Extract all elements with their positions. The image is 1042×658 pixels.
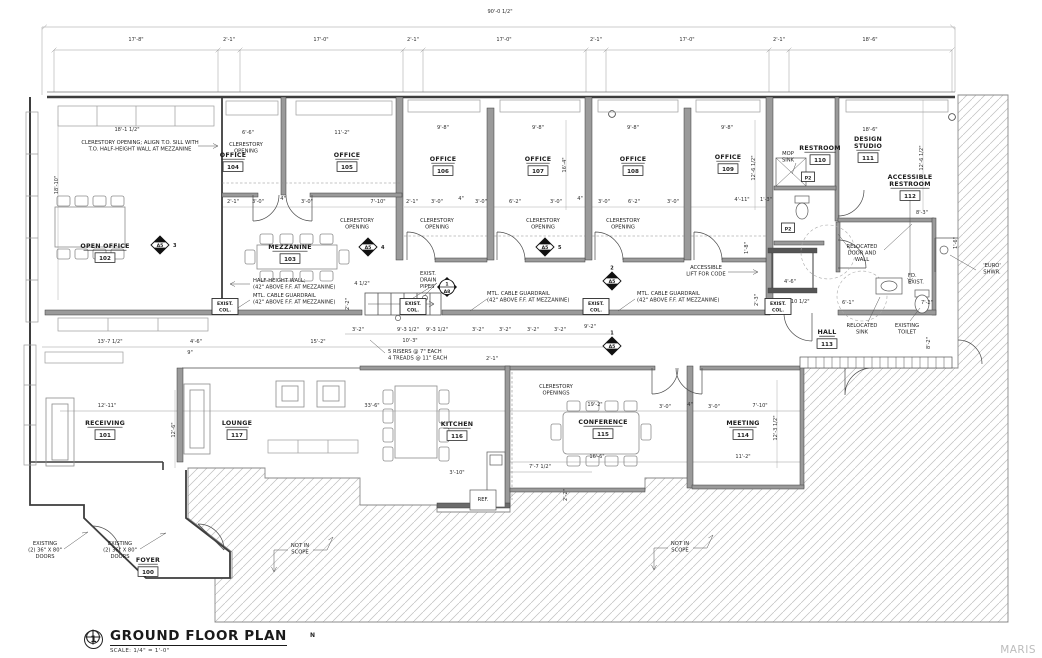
detail-circle-label: A8 xyxy=(444,289,451,295)
receiving-sofa xyxy=(46,398,74,466)
chair xyxy=(551,424,561,440)
annotation-note: 'EURO' xyxy=(983,263,1001,269)
annotation-note: LIFT FOR CODE xyxy=(686,272,725,278)
detail-marker-top xyxy=(606,337,619,343)
dimension-label: 9'-3 1/2" xyxy=(426,327,448,333)
dimension-label: 2'-1" xyxy=(773,37,785,43)
annotation-note: CLERESTORY OPENING; ALIGN T.O. SILL WITH xyxy=(81,140,198,146)
dimension-label: 6'-6" xyxy=(242,130,254,136)
detail-marker-top xyxy=(362,238,375,244)
annotation-note: CLERESTORY xyxy=(229,142,263,148)
annotation-note: SINK xyxy=(856,330,869,336)
annotation-note: CLERESTORY xyxy=(606,218,640,224)
plumbing-tag: P2 xyxy=(785,226,792,232)
dimension-label: 18'-6" xyxy=(862,37,877,43)
dimension-label: 12'-6 1/2" xyxy=(751,155,757,180)
detail-marker-number: 2 xyxy=(610,266,614,272)
room-number: 105 xyxy=(341,165,353,171)
room-label: OPEN OFFICE xyxy=(80,243,129,250)
chair xyxy=(383,447,393,461)
detail-marker-number: 1 xyxy=(610,331,614,337)
room-label: OFFICE xyxy=(430,156,456,163)
annotation-note: CLERESTORY xyxy=(539,384,573,390)
chair xyxy=(567,401,580,411)
dimension-label: 1'-6" xyxy=(953,237,959,249)
floor-plan-sheet: FOYER100RECEIVING101OPEN OFFICE102MEZZAN… xyxy=(0,0,1042,658)
chair xyxy=(339,250,349,264)
dimension-label: 2'-1" xyxy=(486,356,498,362)
drawing-title: GROUND FLOOR PLAN xyxy=(110,628,287,646)
title-block: 1 GROUND FLOOR PLAN SCALE: 1/4" = 1'-0" … xyxy=(84,628,315,654)
dimension-label: 9'-3 1/2" xyxy=(397,327,419,333)
annotation-note: OPENINGS xyxy=(542,391,569,397)
room-number: 104 xyxy=(227,165,239,171)
room-label: RESTROOM xyxy=(889,181,930,188)
open-office-table xyxy=(55,207,125,247)
chair xyxy=(320,271,333,281)
dimension-label: 17'-0" xyxy=(679,37,694,43)
room-label: DESIGN xyxy=(854,136,882,143)
dimension-label: 12'-6 1/2" xyxy=(919,145,925,170)
dimension-label: 3'-2" xyxy=(352,327,364,333)
chair xyxy=(624,456,637,466)
column-tag: EXIST. xyxy=(405,301,421,307)
room-label: OFFICE xyxy=(715,154,741,161)
annotation-note: CLERESTORY xyxy=(340,218,374,224)
dimension-label: 6'-2" xyxy=(628,199,640,205)
toilet-restroom-110 xyxy=(795,196,809,219)
dimension-label: 6'-2" xyxy=(509,199,521,205)
dimension-label: 12'-3 1/2" xyxy=(773,415,779,440)
north-arrow-icon xyxy=(84,628,102,646)
dimension-label: 16'-6" xyxy=(589,454,604,460)
detail-marker-number: 3 xyxy=(173,243,177,249)
drawing-scale: SCALE: 1/4" = 1'-0" xyxy=(110,648,287,654)
dimension-label: 7'-7 1/2" xyxy=(529,464,551,470)
chair xyxy=(439,390,449,404)
annotation-note: (2) 36" X 80" xyxy=(28,548,62,554)
dimension-label: 4'-6" xyxy=(784,279,796,285)
detail-marker-top xyxy=(539,238,552,244)
chair xyxy=(641,424,651,440)
dimension-label: 3'-0" xyxy=(598,199,610,205)
dimension-label: 4'-6" xyxy=(190,339,202,345)
room-number: 111 xyxy=(862,156,874,162)
room-label: MEETING xyxy=(726,420,759,427)
room-number: 117 xyxy=(231,433,243,439)
dimension-label: 19'-2" xyxy=(587,402,602,408)
annotation-note: RELOCATED xyxy=(847,244,878,250)
dimension-label: 3'-0" xyxy=(550,199,562,205)
dimension-label: 3'-0" xyxy=(708,404,720,410)
dimension-label: 17'-0" xyxy=(313,37,328,43)
room-number: 109 xyxy=(722,167,734,173)
room-label: CONFERENCE xyxy=(578,419,627,426)
dimension-label: 2'-1" xyxy=(227,199,239,205)
floor-plan-drawing: FOYER100RECEIVING101OPEN OFFICE102MEZZAN… xyxy=(0,0,1042,658)
dimension-label: 7'-10" xyxy=(752,403,767,409)
detail-circle-number: 1 xyxy=(445,281,448,287)
annotation-note: RELOCATED xyxy=(847,323,878,329)
watermark: MARIS xyxy=(1000,644,1036,656)
chair xyxy=(439,447,449,461)
dimension-label: 8'-2" xyxy=(926,337,932,349)
chair xyxy=(57,196,70,206)
column-tag: EXIST. xyxy=(588,301,604,307)
column-tag: COL. xyxy=(219,307,231,313)
dimension-label: 3'-0" xyxy=(659,404,671,410)
room-label: HALL xyxy=(818,329,837,336)
room-label: RESTROOM xyxy=(799,145,840,152)
annotation-note: PIPES xyxy=(420,284,434,290)
dimension-label: 7'-10" xyxy=(370,199,385,205)
column-tag: COL. xyxy=(590,307,602,313)
annotation-note: (2) 36" X 80" xyxy=(103,548,137,554)
dimension-label: 9'-2" xyxy=(584,324,596,330)
annotation-note: SINK xyxy=(782,158,795,164)
room-number: 107 xyxy=(532,169,544,175)
annotation-note: OPENING xyxy=(611,225,635,231)
room-number: 106 xyxy=(437,169,449,175)
chair xyxy=(300,234,313,244)
chair xyxy=(57,249,70,259)
annotation-note: MOP xyxy=(782,151,794,157)
annotation-note: FD. xyxy=(908,273,917,279)
dimension-label: 11'-2" xyxy=(735,454,750,460)
lounge-armchair xyxy=(317,381,345,407)
annotation-note: SCOPE xyxy=(291,550,308,556)
chair xyxy=(567,456,580,466)
dimension-label: 4" xyxy=(458,196,464,202)
north-label: N xyxy=(310,632,315,639)
chair xyxy=(605,456,618,466)
room-label: ACCESSIBLE xyxy=(888,174,933,181)
dimension-label: 16'-4" xyxy=(562,157,568,172)
room-number: 114 xyxy=(737,433,749,439)
clearance-circles xyxy=(801,225,887,321)
annotation-note: EXIST. xyxy=(420,271,436,277)
dimension-label: 2'-2" xyxy=(345,298,351,310)
chair xyxy=(383,428,393,442)
annotation-note: MTL. CABLE GUARDRAIL xyxy=(637,291,700,297)
dimension-label: 17'-8" xyxy=(128,37,143,43)
dimension-label: 4" xyxy=(280,196,286,202)
dimension-label: 9'-8" xyxy=(721,125,733,131)
dimension-label: 18'-6" xyxy=(862,127,877,133)
column-tag: COL. xyxy=(407,307,419,313)
room-number: 113 xyxy=(821,342,833,348)
room-label: STUDIO xyxy=(854,143,883,150)
chair xyxy=(320,234,333,244)
dimension-label: 9'-8" xyxy=(532,125,544,131)
dimension-label: 90'-0 1/2" xyxy=(487,9,512,15)
dimension-label: 2'-2" xyxy=(563,489,569,501)
walkway-strip xyxy=(800,357,952,368)
room-number: 110 xyxy=(814,158,826,164)
dimension-label: 6'-1" xyxy=(842,300,854,306)
dimension-label: 12'-11" xyxy=(98,403,117,409)
lounge-armchair xyxy=(276,381,304,407)
chair xyxy=(383,390,393,404)
dimension-label: 3'-2" xyxy=(472,327,484,333)
annotation-note: EXISTING xyxy=(33,541,57,547)
annotation-note: DOORS xyxy=(110,554,129,560)
room-label: OFFICE xyxy=(525,156,551,163)
dimension-label: 11'-2" xyxy=(334,130,349,136)
dimension-label: 17'-0" xyxy=(496,37,511,43)
dimension-label: 1'-8" xyxy=(744,242,750,254)
dimension-label: 2'-1" xyxy=(407,37,419,43)
dimension-label: 1'-3" xyxy=(760,197,772,203)
chair xyxy=(280,234,293,244)
annotation-note: OPENING xyxy=(425,225,449,231)
annotation-note: DOOR AND xyxy=(848,251,877,257)
room-number: 100 xyxy=(142,570,154,576)
annotation-note: 5 RISERS @ 7" EACH xyxy=(388,349,442,355)
kitchen-table xyxy=(395,386,437,458)
detail-marker-label: A5 xyxy=(542,245,549,251)
annotation-note: ACCESSIBLE xyxy=(690,265,722,271)
annotation-note: MTL. CABLE GUARDRAIL xyxy=(487,291,550,297)
dimension-label: 3'-10" xyxy=(449,470,464,476)
dimension-label: 4'-11" xyxy=(734,197,749,203)
chair xyxy=(75,196,88,206)
annotation-note: EXISTING xyxy=(895,323,919,329)
annotation-note: OPENING xyxy=(531,225,555,231)
annotation-note: 4 TREADS @ 11" EACH xyxy=(388,356,447,362)
chair xyxy=(245,250,255,264)
detail-marker-top xyxy=(606,272,619,278)
room-label: OFFICE xyxy=(334,152,360,159)
dimension-label: 7'-2" xyxy=(921,300,933,306)
dimension-label: 10'-3" xyxy=(402,338,417,344)
annotation-note: SCOPE xyxy=(671,548,688,554)
detail-marker-number: 4 xyxy=(381,245,385,251)
dimension-label: 3'-2" xyxy=(554,327,566,333)
room-number: 112 xyxy=(904,194,916,200)
plumbing-tag: P2 xyxy=(805,175,812,181)
annotation-note: EXISTING xyxy=(108,541,132,547)
dimension-label: 2'-1" xyxy=(223,37,235,43)
room-label: KITCHEN xyxy=(441,421,473,428)
annotation-note: NOT IN xyxy=(291,543,309,549)
room-label: RECEIVING xyxy=(85,420,125,427)
annotation-note: (42" ABOVE F.F. AT MEZZANINE) xyxy=(487,298,569,304)
room-label: OFFICE xyxy=(620,156,646,163)
dimension-label: 9'-8" xyxy=(627,125,639,131)
annotation-note: EXIST. xyxy=(908,280,924,286)
lounge-sofa xyxy=(184,384,210,454)
dimension-label: 33'-6" xyxy=(364,403,379,409)
detail-marker-label: A5 xyxy=(609,279,616,285)
annotation-note: CLERESTORY xyxy=(526,218,560,224)
room-number: 108 xyxy=(627,169,639,175)
dimension-label: 12'-6" xyxy=(171,422,177,437)
room-number: 103 xyxy=(284,257,296,263)
detail-marker-number: 5 xyxy=(558,245,562,251)
dimension-label: 3'-2" xyxy=(527,327,539,333)
dimension-label: 4 1/2" xyxy=(354,281,369,287)
annotation-note: HALF-HEIGHT WALL; xyxy=(253,278,306,284)
detail-marker-top xyxy=(154,236,167,242)
chair xyxy=(93,196,106,206)
annotation-note: DRAIN xyxy=(420,278,436,284)
dimension-label: 2'-3" xyxy=(754,294,760,306)
annotation-note: T.O. HALF-HEIGHT WALL AT MEZZANINE xyxy=(88,147,192,153)
room-label: MEZZANINE xyxy=(268,244,312,251)
room-number: 115 xyxy=(597,432,609,438)
dimension-label: 9'-8" xyxy=(437,125,449,131)
dimension-label: 4" xyxy=(577,196,583,202)
north-arrow: N xyxy=(310,632,315,639)
room-label: FOYER xyxy=(136,557,160,564)
detail-marker-label: A5 xyxy=(157,243,164,249)
dimension-label: 9" xyxy=(187,350,193,356)
annotation-note: NOT IN xyxy=(671,541,689,547)
dimension-label: 3'-0" xyxy=(475,199,487,205)
column-tag: EXIST. xyxy=(770,301,786,307)
dimension-label: 13'-7 1/2" xyxy=(97,339,122,345)
chair xyxy=(111,196,124,206)
annotation-note: MTL. CABLE GUARDRAIL xyxy=(253,293,316,299)
detail-marker-label: A5 xyxy=(365,245,372,251)
annotation-note: SHWR. xyxy=(983,270,1001,276)
detail-marker-label: A5 xyxy=(609,344,616,350)
dimension-label: 8'-3" xyxy=(916,210,928,216)
dimension-label: 3'-0" xyxy=(667,199,679,205)
chair xyxy=(624,401,637,411)
room-label: LOUNGE xyxy=(222,420,252,427)
column-tag: COL. xyxy=(772,307,784,313)
dimension-label: 18'-10" xyxy=(54,176,60,195)
annotation-note: (42" ABOVE F.F. AT MEZZANINE) xyxy=(253,300,335,306)
dimension-label: 4" xyxy=(687,402,693,408)
dimension-label: 15'-2" xyxy=(310,339,325,345)
annotation-note: (42" ABOVE F.F. AT MEZZANINE) xyxy=(637,298,719,304)
dimension-label: 2'-1" xyxy=(590,37,602,43)
room-number: 101 xyxy=(99,433,111,439)
annotation-note: OPENING xyxy=(345,225,369,231)
dimension-label: 18'-1 1/2" xyxy=(114,127,139,133)
annotation-note: WALL xyxy=(855,257,869,263)
chair xyxy=(605,401,618,411)
dimension-label: 3'-2" xyxy=(499,327,511,333)
annotation-note: OPENING xyxy=(234,149,258,155)
column-tag: EXIST. xyxy=(217,301,233,307)
room-number: 102 xyxy=(99,256,111,262)
chair xyxy=(260,234,273,244)
annotation-note: DOORS xyxy=(35,554,54,560)
dimension-label: 3'-0" xyxy=(252,199,264,205)
annotation-note: REF. xyxy=(478,497,489,503)
room-number: 116 xyxy=(451,434,463,440)
annotation-note: TOILET xyxy=(897,330,917,336)
relocated-sink-fixture xyxy=(876,278,902,294)
dimension-label: 3'-0" xyxy=(431,199,443,205)
annotation-note: (42" ABOVE F.F. AT MEZZANINE) xyxy=(253,285,335,291)
annotation-note: CLERESTORY xyxy=(420,218,454,224)
dimension-label: 2'-1" xyxy=(406,199,418,205)
dimension-label: 3'-0" xyxy=(301,199,313,205)
